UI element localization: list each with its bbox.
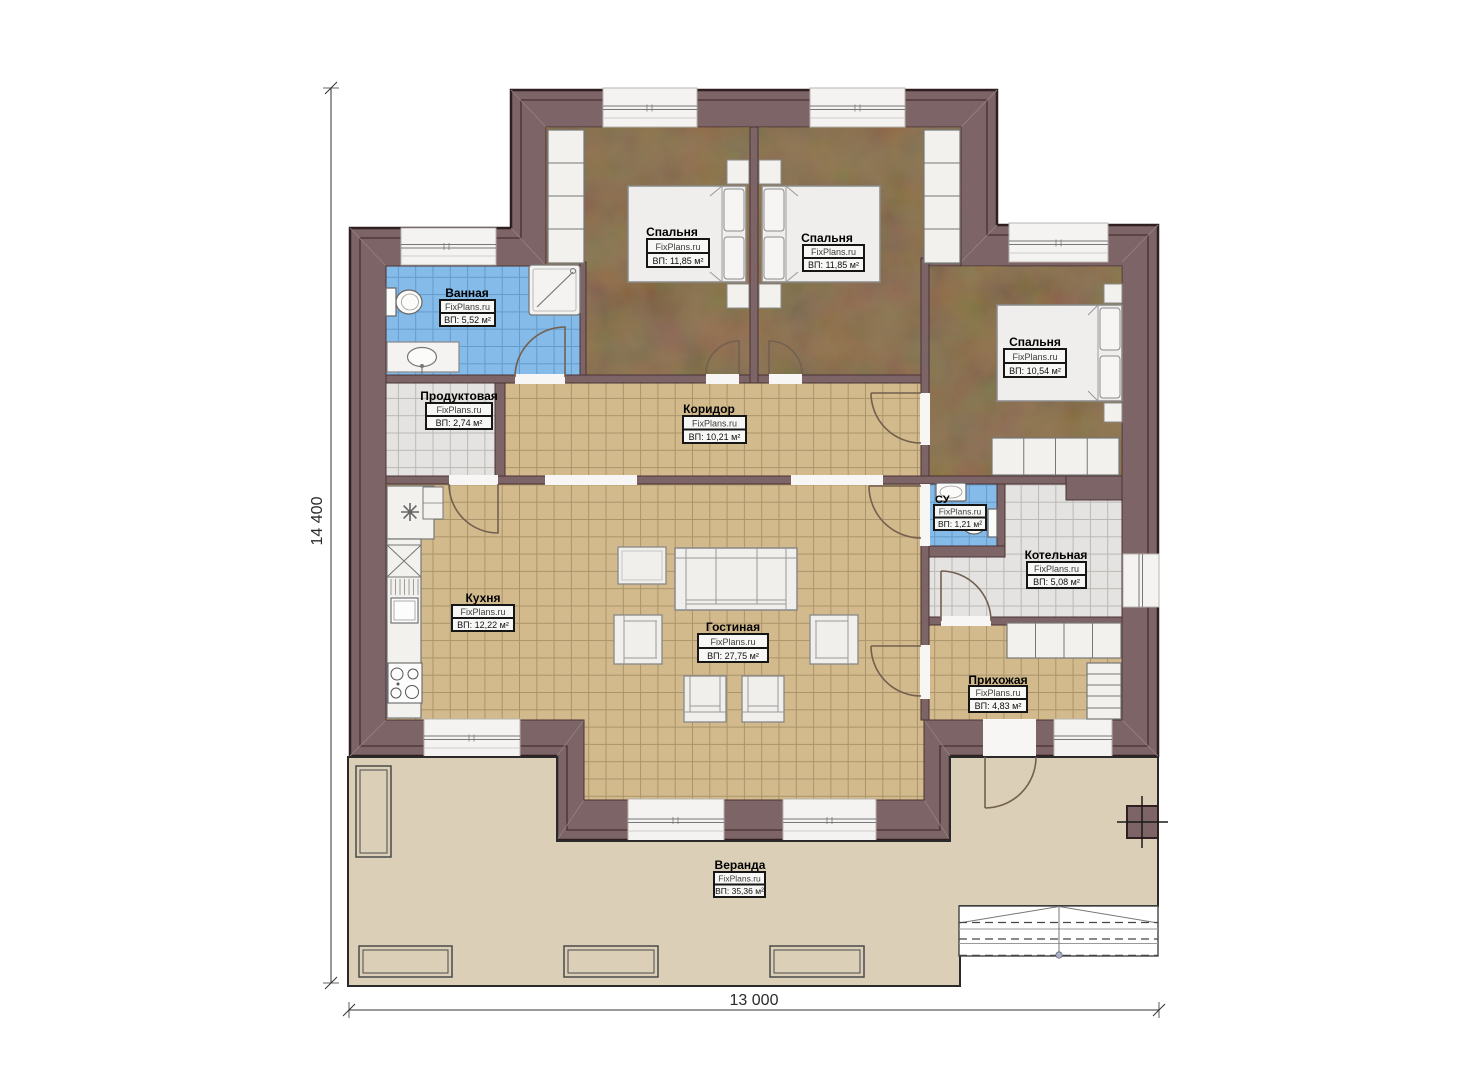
- svg-text:ВП: 27,75 м²: ВП: 27,75 м²: [707, 651, 759, 661]
- svg-text:Спальня: Спальня: [801, 231, 853, 245]
- svg-text:ВП: 12,22 м²: ВП: 12,22 м²: [457, 620, 509, 630]
- svg-text:FixPlans.ru: FixPlans.ru: [1012, 352, 1057, 362]
- svg-text:FixPlans.ru: FixPlans.ru: [445, 302, 490, 312]
- svg-text:Коридор: Коридор: [683, 402, 735, 416]
- svg-text:ВП: 11,85 м²: ВП: 11,85 м²: [652, 256, 703, 266]
- svg-text:ВП: 35,36 м²: ВП: 35,36 м²: [715, 886, 764, 896]
- svg-text:ВП: 4,83 м²: ВП: 4,83 м²: [975, 701, 1022, 711]
- svg-text:ВП: 11,85 м²: ВП: 11,85 м²: [808, 260, 859, 270]
- svg-text:ВП: 2,74 м²: ВП: 2,74 м²: [436, 418, 483, 428]
- svg-text:Ванная: Ванная: [445, 286, 489, 300]
- svg-text:FixPlans.ru: FixPlans.ru: [436, 405, 481, 415]
- svg-text:ВП: 10,54 м²: ВП: 10,54 м²: [1009, 366, 1061, 376]
- svg-text:Веранда: Веранда: [715, 858, 766, 872]
- svg-text:ВП: 5,52 м²: ВП: 5,52 м²: [444, 315, 491, 325]
- svg-text:FixPlans.ru: FixPlans.ru: [939, 506, 982, 516]
- svg-text:FixPlans.ru: FixPlans.ru: [710, 637, 755, 647]
- svg-text:FixPlans.ru: FixPlans.ru: [975, 688, 1020, 698]
- svg-text:14 400: 14 400: [309, 496, 326, 545]
- svg-text:FixPlans.ru: FixPlans.ru: [718, 873, 761, 883]
- svg-text:Спальня: Спальня: [1009, 335, 1061, 349]
- svg-text:FixPlans.ru: FixPlans.ru: [811, 247, 856, 257]
- svg-text:ВП: 5,08 м²: ВП: 5,08 м²: [1033, 577, 1080, 587]
- svg-text:Продуктовая: Продуктовая: [420, 389, 498, 403]
- svg-text:Прихожая: Прихожая: [968, 673, 1027, 687]
- svg-text:Кухня: Кухня: [465, 591, 500, 605]
- svg-text:13 000: 13 000: [730, 992, 779, 1009]
- svg-text:FixPlans.ru: FixPlans.ru: [460, 607, 505, 617]
- svg-text:Спальня: Спальня: [646, 225, 698, 239]
- svg-text:Котельная: Котельная: [1025, 548, 1088, 562]
- svg-text:FixPlans.ru: FixPlans.ru: [655, 242, 700, 252]
- svg-text:ВП: 10,21 м²: ВП: 10,21 м²: [689, 432, 741, 442]
- svg-text:ВП: 1,21 м²: ВП: 1,21 м²: [938, 519, 982, 529]
- svg-text:Гостиная: Гостиная: [706, 620, 760, 634]
- svg-text:FixPlans.ru: FixPlans.ru: [1034, 564, 1079, 574]
- svg-text:FixPlans.ru: FixPlans.ru: [692, 418, 737, 428]
